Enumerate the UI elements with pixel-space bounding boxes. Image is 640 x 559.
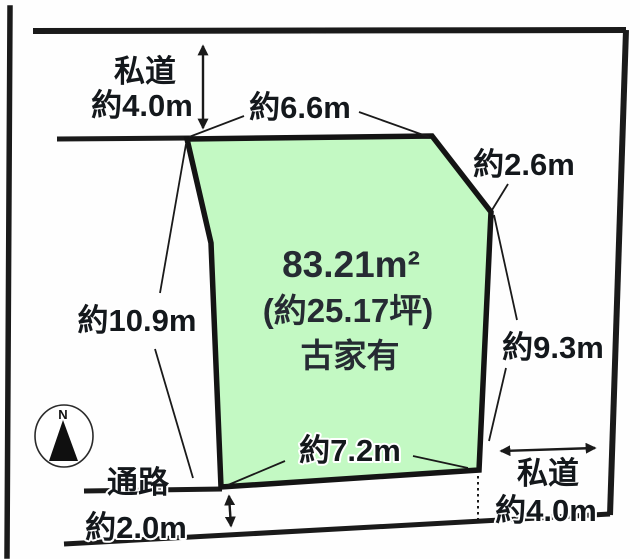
compass: N xyxy=(35,405,93,467)
label-top-road-width: 約4.0m xyxy=(91,88,193,123)
label-right-road: 私道 xyxy=(517,456,579,491)
label-top-right-edge: 約2.6m xyxy=(473,147,575,182)
leader-line-top-right-edge xyxy=(492,184,508,210)
label-right-edge: 約9.3m xyxy=(502,330,604,365)
leader-line-left-edge-lower xyxy=(155,349,193,478)
label-passage: 通路 xyxy=(107,465,170,500)
label-bottom-edge: 約7.2m xyxy=(299,433,401,468)
diagram-canvas: N 私道 約4.0m 約6.6m 約2.6m 約10.9m 約9.3m 約7.2… xyxy=(0,0,640,559)
leader-line-top-edge-right xyxy=(359,112,429,137)
label-left-edge: 約10.9m xyxy=(78,303,197,338)
top-road-upper-line xyxy=(33,30,626,31)
leader-line-top-edge-left xyxy=(189,116,244,137)
passage-width-arrow xyxy=(229,496,231,526)
right-road-width-arrow xyxy=(501,448,595,451)
compass-north-label: N xyxy=(58,407,67,422)
top-road-lower-line xyxy=(57,138,190,139)
left-border-line xyxy=(7,8,10,556)
label-top-edge: 約6.6m xyxy=(249,90,351,125)
plot-tsubo-label: (約25.17坪) xyxy=(263,292,434,329)
leader-line-right-edge-upper xyxy=(494,215,517,320)
label-top-road: 私道 xyxy=(114,54,176,89)
land-plot-diagram: N 私道 約4.0m 約6.6m 約2.6m 約10.9m 約9.3m 約7.2… xyxy=(0,0,640,559)
right-border-line xyxy=(610,30,626,515)
label-passage-width: 約2.0m xyxy=(85,510,187,545)
label-right-road-width: 約4.0m xyxy=(495,493,597,528)
leader-line-left-edge-upper xyxy=(160,144,186,293)
plot-note-label: 古家有 xyxy=(301,337,400,374)
plot-area-label: 83.21m² xyxy=(282,244,420,285)
leader-line-right-edge-lower xyxy=(489,368,506,441)
